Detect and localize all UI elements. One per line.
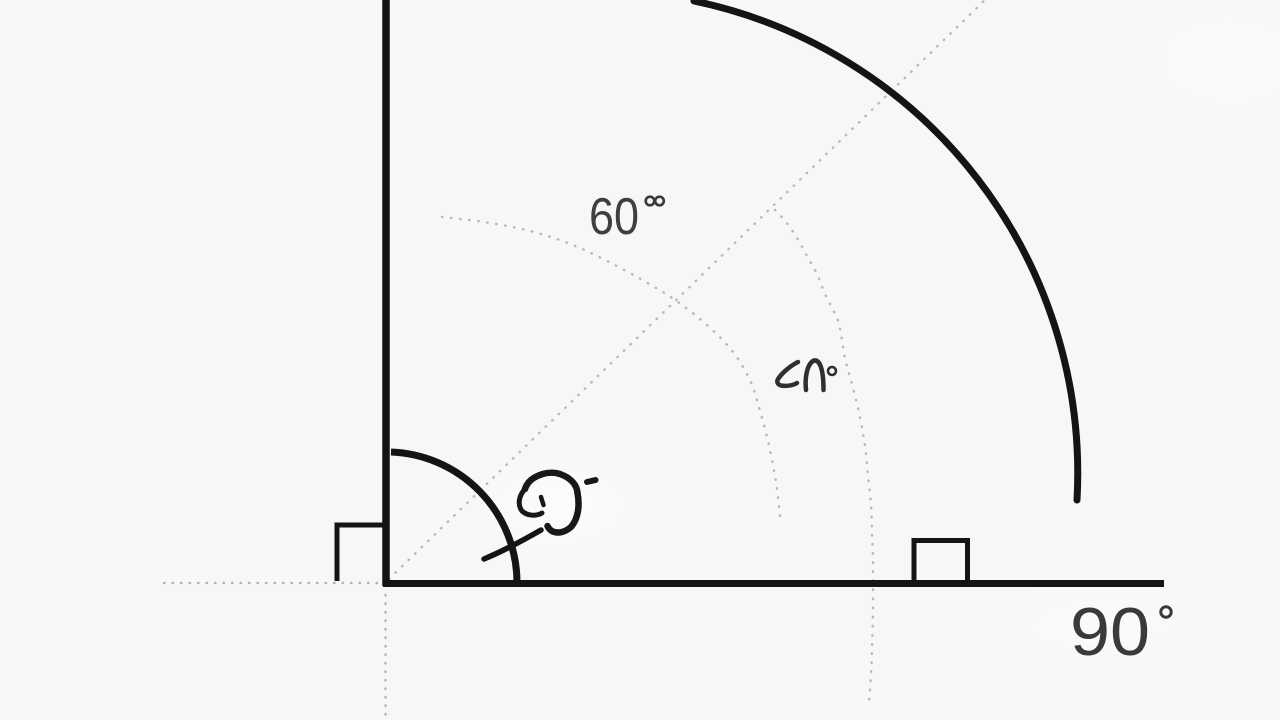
svg-text:90: 90 [1070, 594, 1150, 670]
svg-text:60: 60 [589, 188, 639, 246]
